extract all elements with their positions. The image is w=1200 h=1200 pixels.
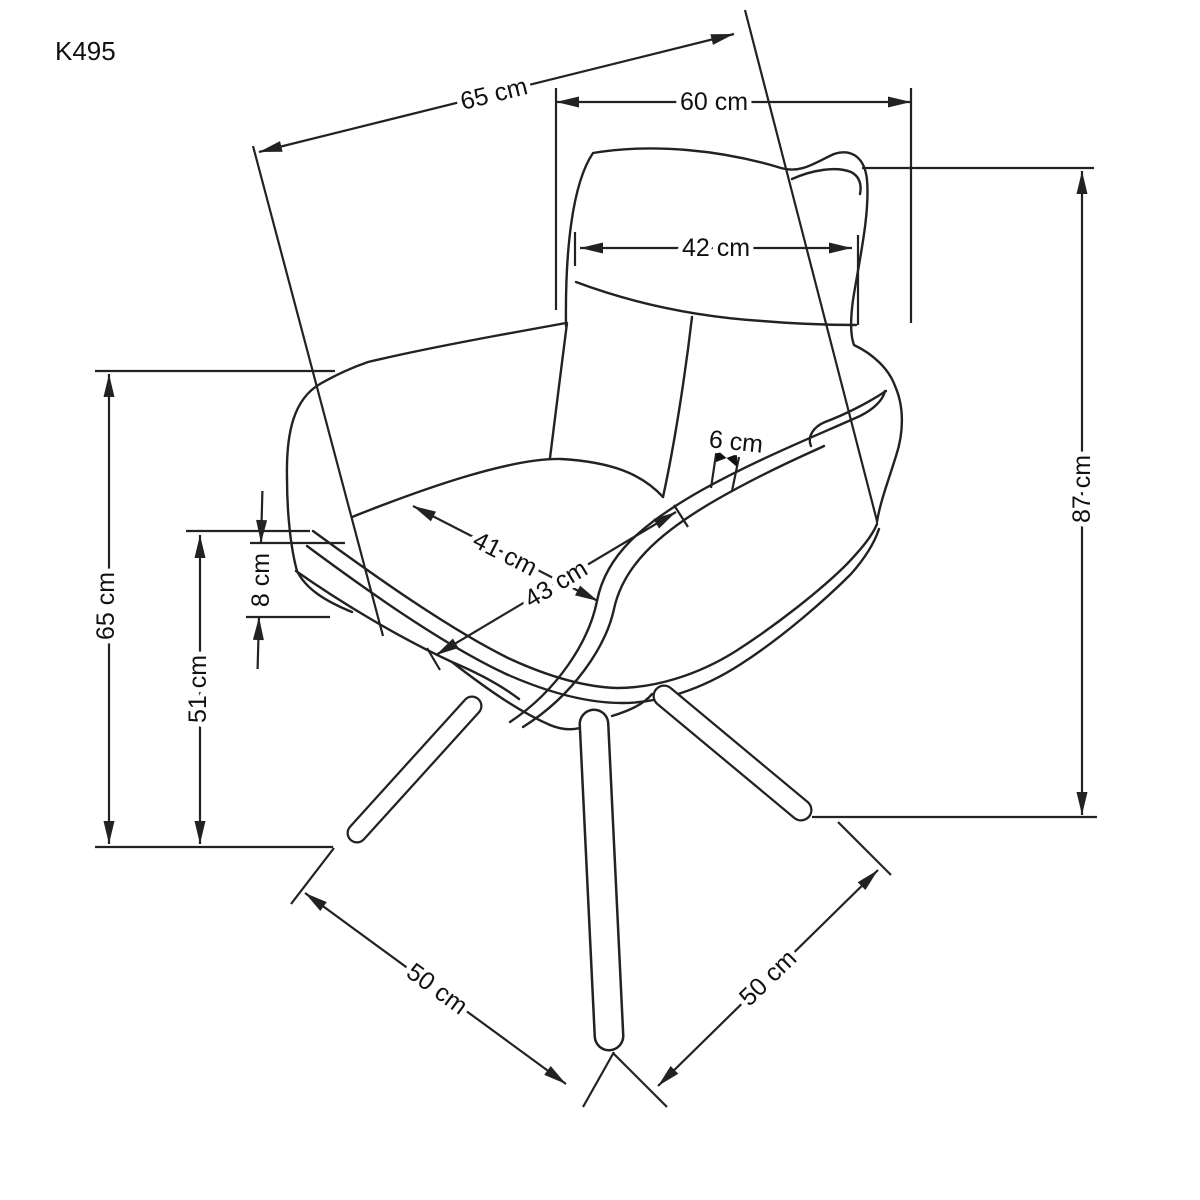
seat-edge-seam-upper [510, 391, 885, 722]
dim-label-base-span-left: 50 cm [401, 958, 473, 1021]
arrowhead [104, 374, 115, 397]
arrowhead [305, 893, 327, 911]
drawing-canvas: 65 cm60 cm42 cm87 cm65 cm51 cm8 cm41 cm4… [0, 0, 1200, 1200]
dim-label-total-depth: 65 cm [458, 72, 531, 116]
arrowhead [888, 97, 911, 108]
leg-back-left-fill [357, 706, 472, 833]
arrowhead [580, 243, 603, 254]
headrest-seam [576, 282, 856, 325]
arrowhead [104, 821, 115, 844]
dim-base-span-right: 50 cm [613, 822, 891, 1107]
leg-back-right-fill [664, 696, 801, 810]
dim-label-seat-height: 51 cm [184, 655, 212, 723]
dim-seat-depth: 43 cm [427, 505, 688, 670]
arrowhead [1077, 171, 1088, 194]
extension-line [583, 1052, 614, 1107]
side-panel-left [287, 478, 352, 612]
dim-armrest-height: 65 cm [92, 371, 335, 847]
armrest-left-attach [500, 323, 566, 335]
leg-front-fill [594, 724, 609, 1036]
arrowhead [253, 617, 264, 640]
extension-line [291, 848, 334, 904]
arrowhead [1077, 792, 1088, 815]
dim-label-armrest-height: 65 cm [92, 572, 120, 640]
dim-cushion-thickness: 8 cm [246, 491, 345, 669]
k495-dimension-diagram: 65 cm60 cm42 cm87 cm65 cm51 cm8 cm41 cm4… [0, 0, 1200, 1200]
extension-line [838, 822, 891, 875]
extension-line [613, 1053, 667, 1107]
dim-label-total-height: 87 cm [1068, 455, 1096, 523]
arrowhead [710, 34, 734, 45]
backrest-center-seam [663, 317, 692, 497]
arrowhead [556, 97, 579, 108]
backrest-wing-fold [792, 169, 861, 194]
dim-total-height: 87 cm [812, 168, 1097, 817]
armrest-left-top [287, 335, 500, 478]
extension-line [674, 505, 688, 527]
model-number-label: K495 [55, 36, 116, 66]
dim-label-total-width: 60 cm [680, 88, 748, 116]
arrowhead [259, 141, 283, 152]
arrowhead [195, 821, 206, 844]
side-panel-bottom-edge [296, 571, 519, 699]
backrest-outline [566, 148, 902, 522]
dim-base-span-left: 50 cm [291, 848, 614, 1107]
arrowhead [413, 506, 436, 521]
armrest-right-inner-hook [810, 391, 886, 446]
dim-label-backrest-width: 42 cm [682, 234, 750, 262]
arrowhead [544, 1066, 566, 1084]
arrowhead [829, 243, 852, 254]
extension-line [427, 648, 440, 670]
hub-right-edge [612, 694, 652, 716]
chair-outline [287, 148, 902, 729]
arrowhead [575, 586, 598, 601]
dim-label-seat-width: 41 cm [468, 526, 541, 582]
backrest-left-lower-edge [550, 323, 567, 458]
dim-label-base-span-right: 50 cm [734, 944, 802, 1011]
dim-label-cushion-thickness: 8 cm [247, 553, 275, 607]
seat-back-edge [352, 459, 663, 517]
dim-backrest-width: 42 cm [575, 232, 858, 325]
arrowhead [195, 535, 206, 558]
dim-label-seat-edge-thickness: 6 cm [708, 425, 765, 459]
